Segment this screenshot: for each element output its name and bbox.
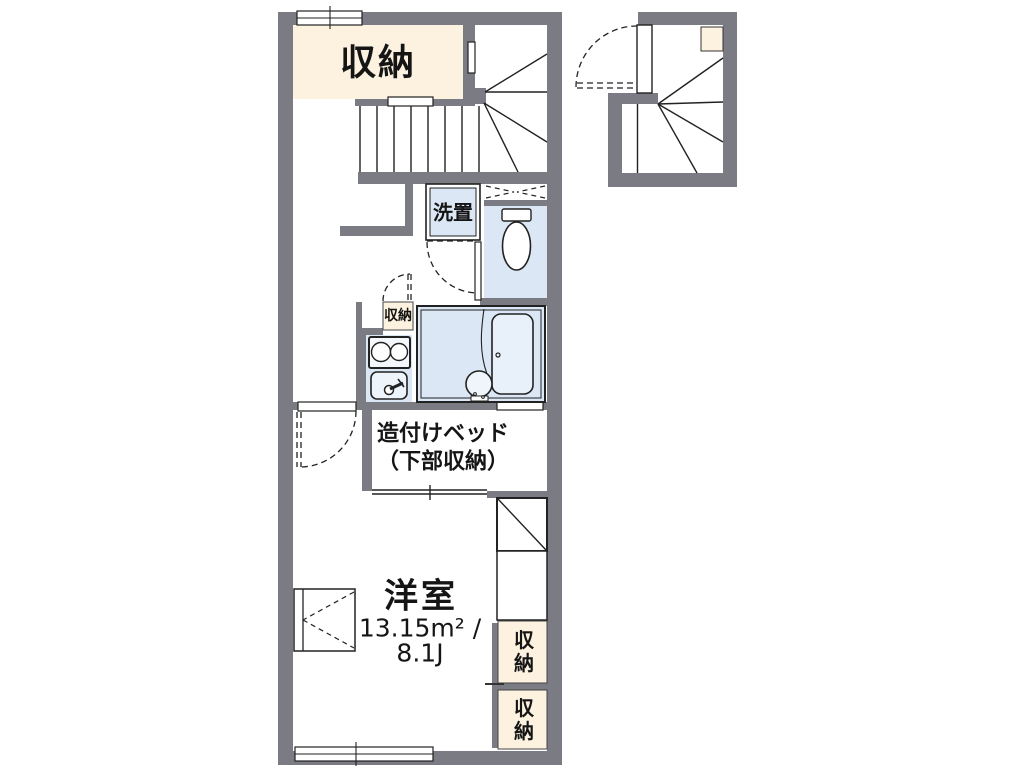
wall-kitchen-corner-bottom	[356, 328, 383, 335]
wall-right	[547, 12, 562, 765]
bed-label-line1: 造付けベッド	[377, 421, 509, 446]
room-door-arc	[300, 411, 356, 467]
entry-door-leaf	[637, 25, 652, 93]
wall-kitchen-left	[356, 335, 366, 402]
stair-winder	[485, 54, 547, 92]
wall-entry-top	[638, 12, 737, 25]
wall-stair-bottom	[358, 172, 547, 184]
floor-plan-drawing	[0, 0, 1017, 772]
stair-rail-opening	[388, 97, 433, 106]
room-closet-symbol	[294, 589, 355, 651]
right-white-box	[497, 551, 547, 620]
entry-stair-winder	[658, 58, 723, 104]
wall-bed-right-bar	[487, 491, 547, 498]
storage-right-upper-label: 収納	[511, 629, 537, 675]
kitchen-door-arc	[383, 274, 410, 301]
entry-stair-winder	[658, 102, 723, 104]
closet-wall-opening	[468, 42, 475, 73]
room-door-leaf	[298, 402, 356, 411]
entry-stair-winder	[658, 104, 697, 173]
wall-left	[278, 12, 293, 765]
wall-stub-horizontal	[340, 226, 413, 236]
washer-space-label: 洗置	[433, 202, 473, 225]
wall-entry-left	[608, 93, 622, 173]
entry-door-swing	[576, 26, 637, 88]
vent-line	[517, 192, 545, 198]
toilet-icon	[502, 209, 531, 270]
bathroom	[417, 306, 545, 402]
bath-basin-fitting	[471, 396, 488, 401]
bed-label-line2: （下部収納）	[377, 449, 509, 474]
wall-storage-separator	[498, 683, 547, 690]
wall-entry-corner-block	[622, 93, 658, 104]
stove-burner	[391, 344, 408, 361]
wall-toilet-top	[484, 200, 547, 206]
vent-line	[486, 186, 514, 192]
vent-line	[517, 186, 545, 192]
entry-door-arc	[576, 26, 637, 87]
wall-bed-left	[362, 410, 372, 491]
stove-burner	[372, 343, 391, 362]
room-tatami-label: 8.1J	[396, 640, 443, 669]
vent-line	[486, 192, 514, 198]
toilet-bowl	[503, 222, 531, 270]
closet-small-label: 収納	[384, 308, 412, 324]
wall-entry-right	[723, 12, 737, 187]
toilet-vent-icon	[486, 186, 545, 198]
wall-kitchen-corner-left	[356, 302, 362, 328]
wall-storage-track	[492, 623, 498, 748]
bathtub-icon	[492, 314, 533, 394]
wall-toilet-bottom	[480, 298, 547, 306]
bed-front-edge	[372, 485, 487, 500]
closet-top-label: 収納	[340, 42, 416, 83]
storage-right-lower-label: 収納	[511, 697, 537, 743]
toilet-door-arc	[427, 242, 478, 293]
entry-cream-box	[701, 27, 723, 51]
toilet-tank	[502, 209, 531, 221]
bath-basin-icon	[466, 371, 492, 397]
wall-entry-bottom	[608, 173, 737, 187]
room-name-label: 洋室	[384, 577, 458, 616]
entry-stair-winder	[658, 104, 723, 142]
toilet-door-leaf	[475, 242, 481, 300]
entry-staircase	[576, 12, 737, 187]
floor-plan: 収納 洗置 収納 造付けベッド （下部収納） 洋室 13.15m² / 8.1J…	[0, 0, 1017, 772]
kitchen-fixtures	[369, 337, 410, 399]
